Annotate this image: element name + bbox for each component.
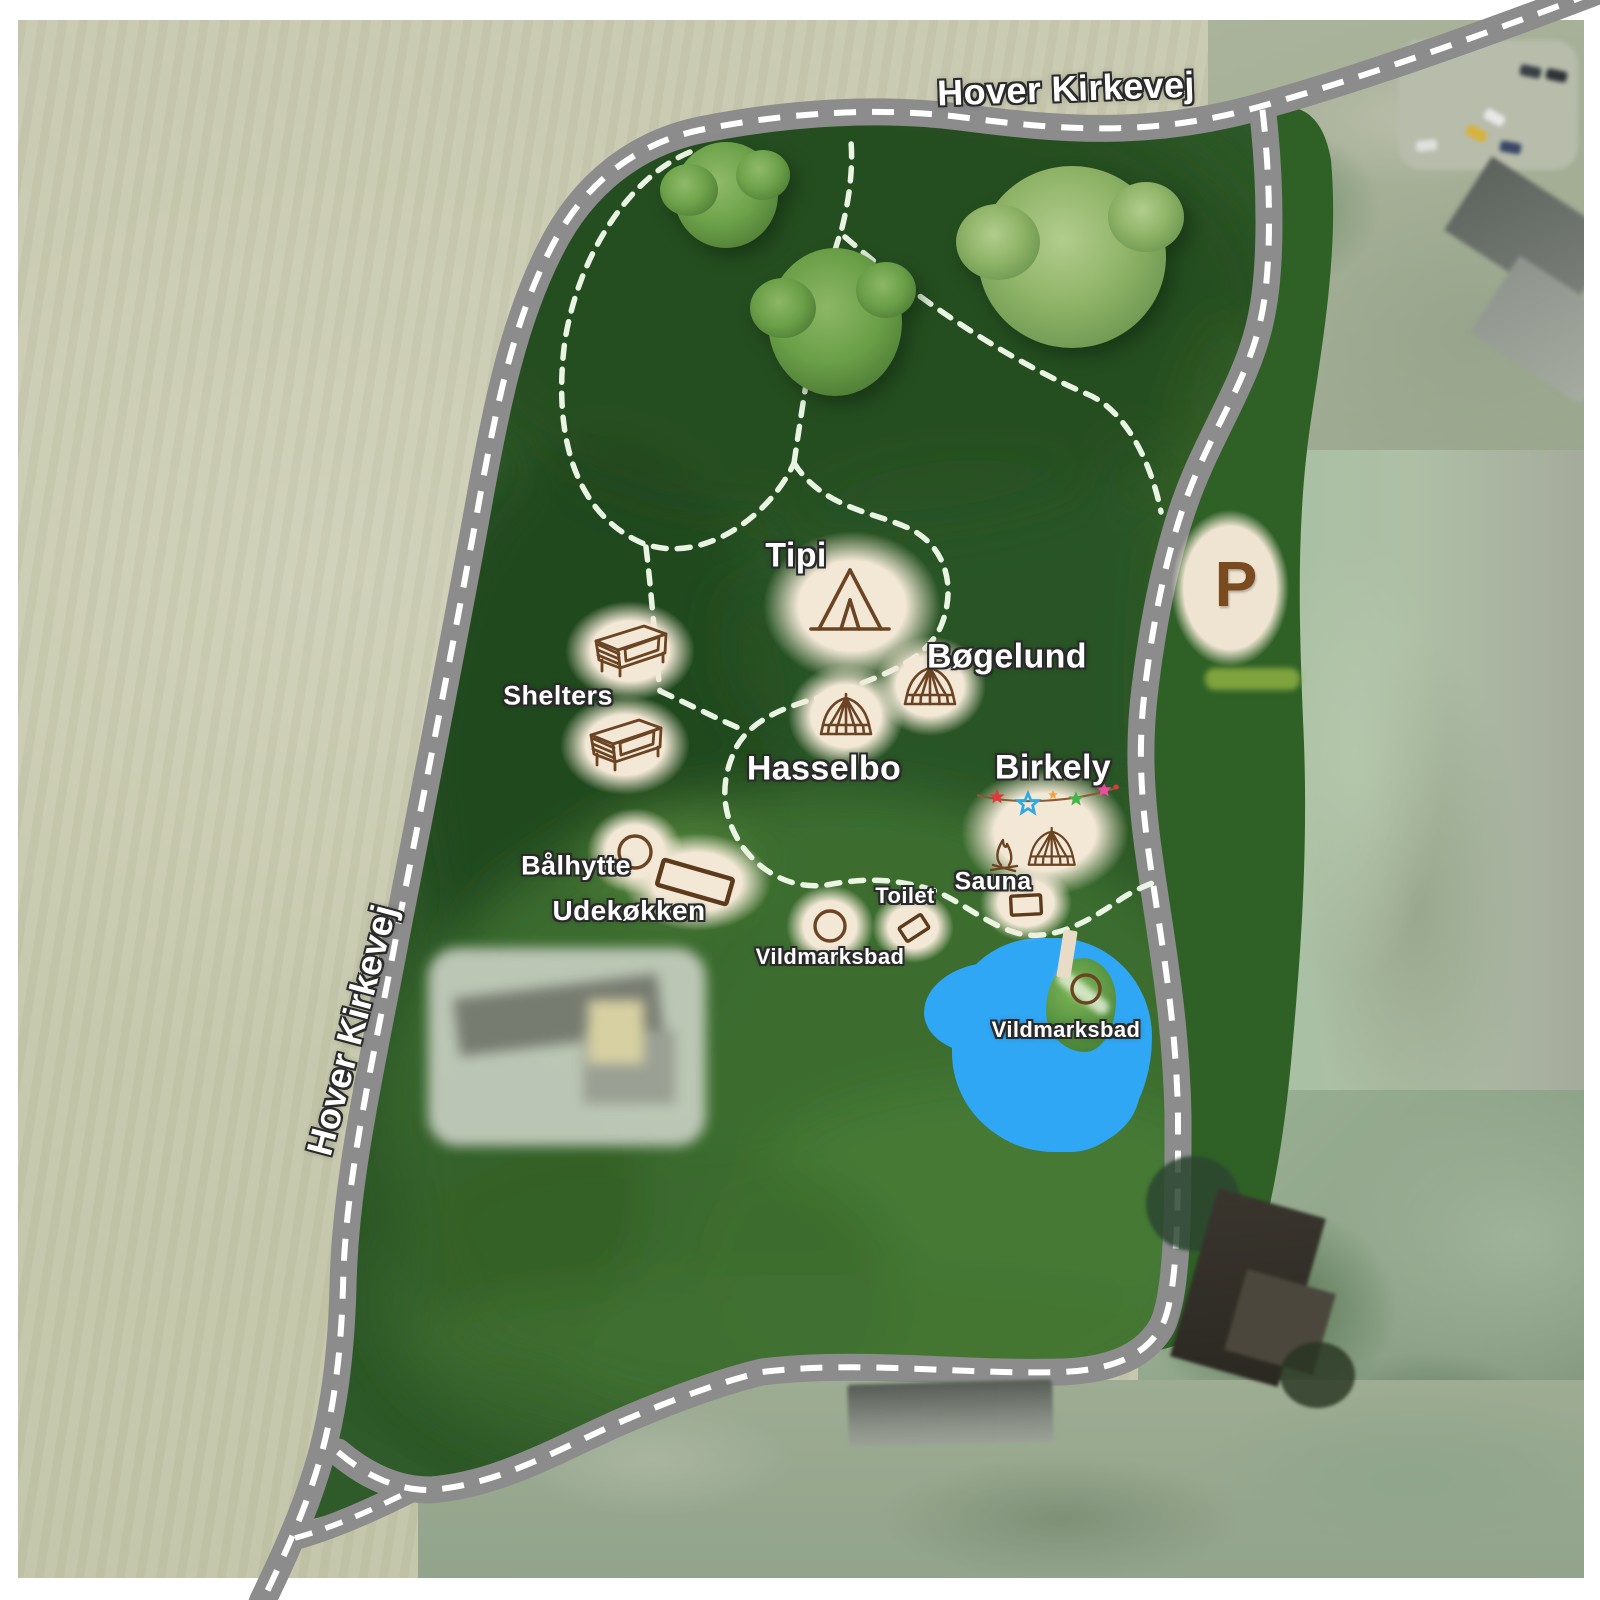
label-udekokken: Udekøkken bbox=[553, 895, 706, 927]
campfire-icon bbox=[991, 840, 1017, 871]
page-margin-bottom bbox=[0, 1578, 1600, 1600]
road-label-hover-kirkevej-top: Hover Kirkevej bbox=[936, 64, 1195, 115]
bell-tent-icon bbox=[817, 693, 875, 739]
south-barn bbox=[847, 1379, 1054, 1446]
hot-tub-circle-icon bbox=[811, 907, 849, 945]
label-vildmarksbad-lake: Vildmarksbad bbox=[992, 1017, 1141, 1043]
page-margin-top bbox=[0, 0, 1600, 20]
label-sauna: Sauna bbox=[954, 868, 1031, 897]
label-tipi: Tipi bbox=[765, 537, 826, 576]
tree bbox=[674, 142, 778, 248]
hot-tub-circle-icon bbox=[1067, 970, 1105, 1008]
label-toilet: Toilet bbox=[875, 883, 934, 909]
page-margin-left bbox=[0, 0, 18, 1600]
parking-grass-strip bbox=[1205, 668, 1300, 690]
blurred-farmhouse bbox=[428, 948, 706, 1146]
farmhouse-beige-roof bbox=[588, 1000, 644, 1064]
wooden-shelter-icon bbox=[590, 619, 672, 681]
parking-letter: P bbox=[1215, 547, 1258, 621]
label-balhytte: Bålhytte bbox=[521, 851, 631, 882]
page-margin-right bbox=[1584, 0, 1600, 1600]
label-hasselbo: Hasselbo bbox=[747, 750, 901, 789]
label-birkely: Birkely bbox=[995, 749, 1111, 788]
label-bogelund: Bøgelund bbox=[927, 638, 1087, 677]
label-shelters: Shelters bbox=[503, 681, 613, 712]
bell-tent-icon bbox=[1029, 828, 1075, 865]
parked-car bbox=[1415, 139, 1437, 152]
campsite-map: Tipi Bøgelund Hasselbo Birkely Shelters … bbox=[0, 0, 1600, 1600]
tree bbox=[978, 166, 1166, 348]
farm-buildings bbox=[1388, 40, 1584, 440]
dark-farm-building bbox=[1160, 1160, 1360, 1420]
tree-shadow bbox=[1280, 1342, 1355, 1408]
wooden-shelter-icon bbox=[585, 713, 667, 775]
tree bbox=[768, 248, 902, 396]
label-vildmarksbad: Vildmarksbad bbox=[756, 944, 905, 970]
